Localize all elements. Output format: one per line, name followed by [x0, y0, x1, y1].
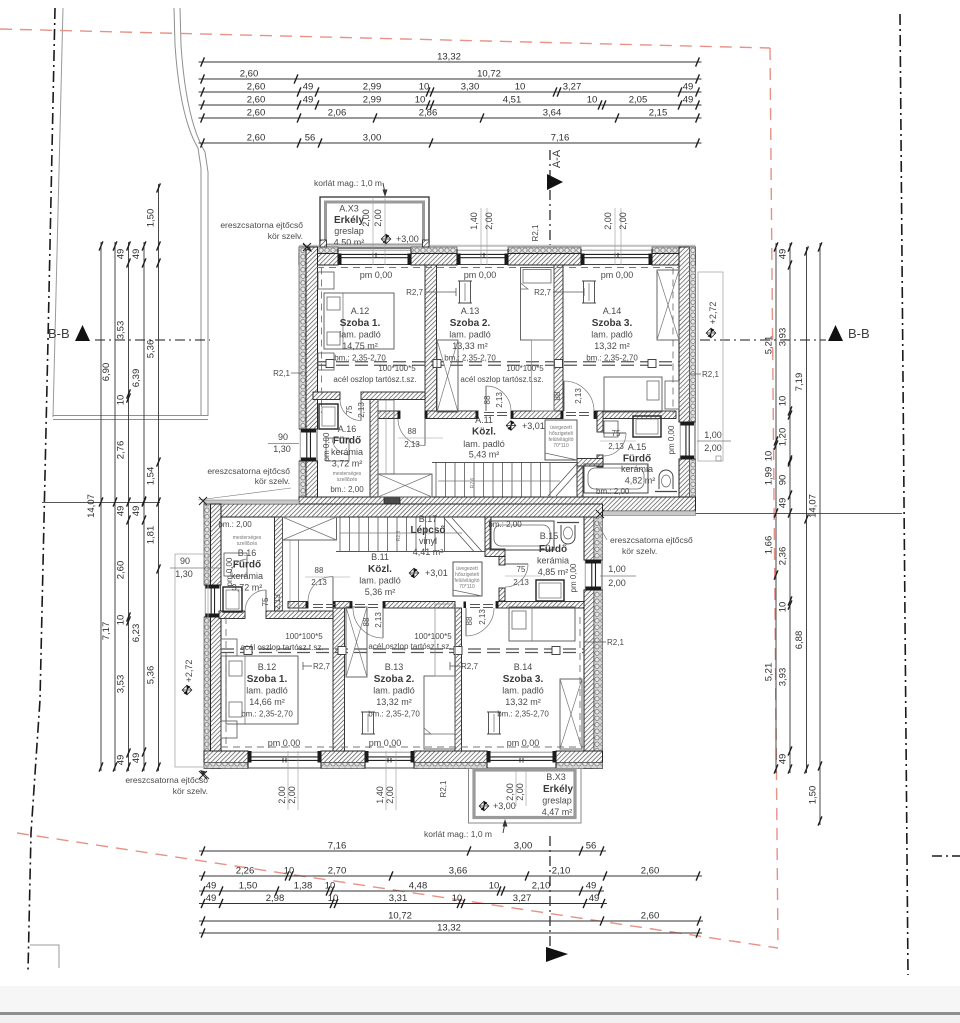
svg-text:2,00: 2,00 — [704, 443, 722, 453]
svg-text:2,00: 2,00 — [361, 209, 371, 227]
svg-text:13,33 m²: 13,33 m² — [452, 341, 488, 351]
svg-text:3,72 m²: 3,72 m² — [332, 459, 363, 469]
svg-text:A.16: A.16 — [338, 424, 357, 434]
svg-text:2,60: 2,60 — [247, 133, 266, 144]
svg-text:2,98: 2,98 — [266, 893, 285, 904]
svg-text:3,53: 3,53 — [116, 321, 127, 340]
svg-text:A.15: A.15 — [628, 442, 647, 452]
svg-text:49: 49 — [303, 95, 314, 106]
svg-text:R2,6: R2,6 — [396, 531, 402, 542]
svg-text:1,66: 1,66 — [764, 536, 775, 555]
svg-text:2,13: 2,13 — [404, 440, 420, 449]
svg-text:88: 88 — [408, 427, 417, 436]
svg-text:5,36: 5,36 — [146, 340, 157, 359]
svg-text:2,00: 2,00 — [603, 212, 613, 230]
svg-text:3,64: 3,64 — [543, 108, 562, 119]
svg-text:4,51: 4,51 — [503, 95, 522, 106]
svg-text:greslap: greslap — [542, 796, 572, 806]
svg-text:kerámia: kerámia — [621, 464, 653, 474]
svg-text:lam. padló: lam. padló — [449, 330, 491, 340]
svg-text:Erkély: Erkély — [334, 215, 364, 226]
svg-text:10: 10 — [778, 396, 789, 407]
svg-text:vinyl: vinyl — [419, 536, 437, 546]
svg-text:1,30: 1,30 — [273, 444, 291, 454]
svg-text:10: 10 — [587, 95, 598, 106]
svg-text:2,60: 2,60 — [247, 82, 266, 93]
svg-text:2,06: 2,06 — [328, 108, 347, 119]
svg-text:ereszcsatorna ejtőcső: ereszcsatorna ejtőcső — [125, 775, 208, 785]
svg-text:Lépcső: Lépcső — [410, 525, 445, 536]
svg-text:49: 49 — [116, 249, 127, 260]
svg-text:49: 49 — [778, 754, 789, 765]
svg-text:Szoba 3.: Szoba 3. — [592, 318, 633, 329]
svg-text:7,16: 7,16 — [328, 841, 347, 852]
svg-text:49: 49 — [131, 506, 142, 517]
svg-text:10: 10 — [515, 82, 526, 93]
svg-text:acél oszlop tartósz.t.sz.: acél oszlop tartósz.t.sz. — [368, 642, 451, 651]
svg-text:49: 49 — [303, 82, 314, 93]
svg-text:2,05: 2,05 — [629, 95, 648, 106]
svg-text:49: 49 — [206, 881, 217, 892]
svg-text:2,60: 2,60 — [641, 866, 660, 877]
svg-text:5,21: 5,21 — [764, 663, 775, 682]
svg-text:6,88: 6,88 — [794, 631, 805, 650]
svg-text:3,00: 3,00 — [363, 133, 382, 144]
svg-text:2,00: 2,00 — [385, 786, 395, 804]
svg-text:100*100*5: 100*100*5 — [285, 632, 323, 641]
svg-text:kerámia: kerámia — [231, 571, 263, 581]
svg-text:4,48: 4,48 — [409, 881, 428, 892]
svg-text:Fürdő: Fürdő — [333, 436, 361, 447]
svg-text:10,72: 10,72 — [388, 911, 412, 922]
svg-text:49: 49 — [586, 881, 597, 892]
svg-text:13,32: 13,32 — [437, 52, 461, 63]
svg-text:bm.: 2,00: bm.: 2,00 — [218, 520, 252, 529]
svg-text:90: 90 — [180, 556, 190, 566]
svg-text:kerámia: kerámia — [537, 556, 569, 566]
svg-text:B.17: B.17 — [419, 514, 438, 524]
svg-text:56: 56 — [305, 133, 316, 144]
svg-text:2,00: 2,00 — [373, 209, 383, 227]
svg-text:90: 90 — [278, 432, 288, 442]
svg-text:3,66: 3,66 — [449, 866, 468, 877]
svg-text:10: 10 — [284, 866, 295, 877]
svg-text:lam. padló: lam. padló — [359, 576, 401, 586]
svg-text:Szoba 1.: Szoba 1. — [340, 318, 381, 329]
svg-text:ereszcsatorna ejtőcső: ereszcsatorna ejtőcső — [220, 220, 303, 230]
svg-text:2,60: 2,60 — [247, 95, 266, 106]
svg-text:pm 0,00: pm 0,00 — [507, 738, 540, 748]
svg-text:B-B: B-B — [848, 326, 870, 341]
svg-text:10: 10 — [764, 451, 775, 462]
svg-text:R2,1: R2,1 — [273, 369, 290, 378]
svg-text:pm 0,00: pm 0,00 — [667, 425, 676, 454]
svg-text:pm 0,00: pm 0,00 — [369, 738, 402, 748]
svg-text:49: 49 — [206, 893, 217, 904]
svg-text:acél oszlop tartósz.t.sz.: acél oszlop tartósz.t.sz. — [333, 375, 416, 384]
svg-text:5,36: 5,36 — [146, 666, 157, 685]
svg-text:14,75 m²: 14,75 m² — [342, 341, 378, 351]
svg-text:+2,72: +2,72 — [708, 302, 718, 325]
svg-text:2,36: 2,36 — [778, 547, 789, 566]
svg-text:R2,6: R2,6 — [470, 478, 476, 489]
svg-text:10: 10 — [452, 893, 463, 904]
svg-text:pm 0,00: pm 0,00 — [569, 563, 578, 592]
svg-text:2,13: 2,13 — [495, 392, 504, 408]
svg-text:2,99: 2,99 — [363, 95, 382, 106]
svg-text:2,13: 2,13 — [608, 442, 624, 451]
svg-text:2,60: 2,60 — [641, 911, 660, 922]
svg-text:szellőzés: szellőzés — [337, 477, 358, 483]
svg-text:7,19: 7,19 — [794, 373, 805, 392]
svg-text:2,60: 2,60 — [240, 69, 259, 80]
svg-text:R2,7: R2,7 — [406, 288, 423, 297]
svg-text:B.14: B.14 — [514, 662, 533, 672]
svg-text:2,13: 2,13 — [311, 578, 327, 587]
svg-text:2,00: 2,00 — [505, 783, 515, 801]
svg-text:49: 49 — [116, 755, 127, 766]
svg-text:4,41 m²: 4,41 m² — [413, 547, 444, 557]
svg-text:49: 49 — [131, 753, 142, 764]
svg-text:1,40: 1,40 — [375, 786, 385, 804]
svg-text:R2,1: R2,1 — [702, 370, 719, 379]
svg-text:A.X3: A.X3 — [339, 204, 359, 214]
svg-text:3,27: 3,27 — [513, 893, 532, 904]
svg-text:1,99: 1,99 — [764, 467, 775, 486]
svg-text:2,26: 2,26 — [236, 866, 255, 877]
svg-text:75: 75 — [517, 565, 526, 574]
svg-text:6,23: 6,23 — [131, 624, 142, 643]
svg-text:B.12: B.12 — [258, 662, 277, 672]
svg-text:bm.: 2,00: bm.: 2,00 — [596, 487, 630, 496]
svg-text:13,32 m²: 13,32 m² — [376, 697, 412, 707]
svg-text:1,00: 1,00 — [704, 430, 722, 440]
svg-text:5,36 m²: 5,36 m² — [365, 587, 396, 597]
svg-text:+2,72: +2,72 — [184, 660, 194, 683]
svg-text:2,10: 2,10 — [552, 866, 571, 877]
svg-text:2,60: 2,60 — [247, 108, 266, 119]
svg-text:1,50: 1,50 — [239, 881, 258, 892]
svg-text:lam. padló: lam. padló — [463, 439, 505, 449]
svg-text:bm.: 2,35-2,70: bm.: 2,35-2,70 — [241, 710, 293, 719]
svg-text:88: 88 — [553, 391, 562, 400]
svg-text:2,15: 2,15 — [649, 108, 668, 119]
svg-text:70*110: 70*110 — [553, 443, 569, 449]
svg-text:B.11: B.11 — [371, 552, 389, 562]
svg-text:2,70: 2,70 — [328, 866, 347, 877]
svg-text:49: 49 — [778, 249, 789, 260]
svg-text:49: 49 — [589, 893, 600, 904]
svg-text:10: 10 — [116, 395, 127, 406]
svg-text:10: 10 — [419, 82, 430, 93]
svg-text:korlát mag.: 1,0 m: korlát mag.: 1,0 m — [314, 178, 382, 188]
svg-text:Erkély: Erkély — [543, 784, 573, 795]
svg-text:B.13: B.13 — [385, 662, 404, 672]
svg-text:3,31: 3,31 — [389, 893, 408, 904]
svg-text:70*110: 70*110 — [459, 584, 475, 590]
svg-text:acél oszlop tartósz.t.sz.: acél oszlop tartósz.t.sz. — [460, 375, 543, 384]
svg-text:acél oszlop tartósz.t.sz.: acél oszlop tartósz.t.sz. — [240, 643, 323, 652]
svg-text:Fürdő: Fürdő — [233, 560, 261, 571]
svg-text:bm.: 2,35-2,70: bm.: 2,35-2,70 — [586, 354, 638, 363]
svg-text:A.13: A.13 — [461, 306, 480, 316]
svg-text:88: 88 — [465, 616, 474, 625]
svg-text:88: 88 — [483, 395, 492, 404]
svg-text:Fürdő: Fürdő — [623, 454, 651, 465]
svg-text:lam. padló: lam. padló — [591, 330, 633, 340]
svg-text:13,32 m²: 13,32 m² — [505, 697, 541, 707]
svg-text:kerámia: kerámia — [331, 447, 363, 457]
svg-text:5,43 m²: 5,43 m² — [469, 450, 500, 460]
svg-text:Szoba 2.: Szoba 2. — [374, 674, 415, 685]
svg-text:Közl.: Közl. — [472, 427, 496, 438]
svg-text:6,39: 6,39 — [131, 369, 142, 388]
svg-text:B-B: B-B — [48, 326, 70, 341]
svg-text:4,85 m²: 4,85 m² — [538, 567, 569, 577]
svg-text:1,81: 1,81 — [146, 526, 157, 545]
svg-text:100*100*5: 100*100*5 — [506, 364, 544, 373]
svg-text:100*100*5: 100*100*5 — [414, 632, 452, 641]
svg-text:Szoba 1.: Szoba 1. — [247, 674, 288, 685]
svg-text:A.14: A.14 — [603, 306, 622, 316]
svg-text:2,13: 2,13 — [357, 402, 366, 418]
svg-text:R2,1: R2,1 — [607, 638, 624, 647]
svg-text:korlát mag.: 1,0 m: korlát mag.: 1,0 m — [424, 829, 492, 839]
svg-text:pm 0,00: pm 0,00 — [464, 270, 497, 280]
svg-text:10: 10 — [325, 881, 336, 892]
svg-text:B.X3: B.X3 — [546, 772, 566, 782]
svg-text:3,93: 3,93 — [778, 328, 789, 347]
svg-text:3,27: 3,27 — [563, 82, 582, 93]
svg-text:1,00: 1,00 — [608, 564, 626, 574]
svg-text:bm.: 2,35-2,70: bm.: 2,35-2,70 — [497, 710, 549, 719]
svg-text:+3,00: +3,00 — [396, 234, 419, 244]
svg-text:szellőzés: szellőzés — [237, 541, 258, 547]
svg-text:2,00: 2,00 — [608, 578, 626, 588]
svg-text:14,07: 14,07 — [808, 494, 819, 518]
svg-text:pm 0,00: pm 0,00 — [601, 270, 634, 280]
svg-text:Közl.: Közl. — [368, 564, 392, 575]
svg-text:75: 75 — [261, 597, 270, 606]
svg-text:R2,1: R2,1 — [439, 780, 448, 797]
svg-text:2,00: 2,00 — [287, 786, 297, 804]
svg-text:R2,7: R2,7 — [313, 662, 330, 671]
svg-text:bm.: 2,35-2,70: bm.: 2,35-2,70 — [368, 710, 420, 719]
svg-text:2,00: 2,00 — [515, 783, 525, 801]
svg-text:pm 0,00: pm 0,00 — [268, 738, 301, 748]
svg-text:kör szelv.: kör szelv. — [255, 476, 290, 486]
svg-text:Szoba 3.: Szoba 3. — [503, 674, 544, 685]
svg-text:bm.: 2,35-2,70: bm.: 2,35-2,70 — [334, 354, 386, 363]
svg-text:Fürdő: Fürdő — [539, 544, 567, 555]
svg-text:2,60: 2,60 — [116, 561, 127, 580]
svg-text:pm 0,00: pm 0,00 — [225, 557, 234, 586]
svg-text:14,07: 14,07 — [86, 494, 97, 518]
svg-text:R2,7: R2,7 — [461, 662, 478, 671]
svg-text:49: 49 — [116, 506, 127, 517]
svg-text:2,76: 2,76 — [116, 441, 127, 460]
svg-text:kör szelv.: kör szelv. — [173, 786, 208, 796]
svg-text:kör szelv.: kör szelv. — [268, 231, 303, 241]
svg-text:+3,01: +3,01 — [522, 421, 545, 431]
svg-text:3,72 m²: 3,72 m² — [232, 583, 263, 593]
svg-text:pm 0,00: pm 0,00 — [322, 432, 331, 461]
svg-text:1,54: 1,54 — [146, 467, 157, 486]
svg-text:2,13: 2,13 — [374, 612, 383, 628]
svg-text:7,16: 7,16 — [551, 133, 570, 144]
svg-text:lam. padló: lam. padló — [246, 686, 288, 696]
svg-text:3,30: 3,30 — [461, 82, 480, 93]
svg-text:1,20: 1,20 — [778, 428, 789, 447]
svg-text:R2,7: R2,7 — [534, 288, 551, 297]
svg-text:5,21: 5,21 — [764, 336, 775, 355]
svg-text:2,00: 2,00 — [618, 212, 628, 230]
svg-text:10: 10 — [328, 893, 339, 904]
svg-text:B.16: B.16 — [238, 548, 257, 558]
svg-text:10: 10 — [489, 881, 500, 892]
svg-text:88: 88 — [315, 566, 324, 575]
svg-text:49: 49 — [778, 498, 789, 509]
svg-text:3,93: 3,93 — [778, 668, 789, 687]
svg-text:2,00: 2,00 — [277, 786, 287, 804]
svg-text:kör szelv.: kör szelv. — [622, 546, 657, 556]
svg-text:1,40: 1,40 — [469, 212, 479, 230]
svg-text:A.12: A.12 — [351, 306, 370, 316]
svg-text:3,00: 3,00 — [514, 841, 533, 852]
svg-text:49: 49 — [131, 249, 142, 260]
svg-text:56: 56 — [586, 841, 597, 852]
svg-text:7,17: 7,17 — [101, 622, 112, 641]
svg-text:1,38: 1,38 — [294, 881, 313, 892]
svg-text:2,13: 2,13 — [478, 609, 487, 625]
svg-text:R2,1: R2,1 — [531, 224, 540, 241]
svg-text:2,99: 2,99 — [363, 82, 382, 93]
svg-text:bm.: 2,35-2,70: bm.: 2,35-2,70 — [444, 354, 496, 363]
svg-text:100*100*5: 100*100*5 — [378, 364, 416, 373]
svg-text:10: 10 — [116, 615, 127, 626]
svg-text:ereszcsatorna ejtőcső: ereszcsatorna ejtőcső — [207, 466, 290, 476]
svg-text:10: 10 — [415, 95, 426, 106]
svg-text:bm.: 2,00: bm.: 2,00 — [330, 485, 364, 494]
svg-text:lam. padló: lam. padló — [339, 330, 381, 340]
svg-text:88: 88 — [362, 617, 371, 626]
svg-text:10: 10 — [778, 602, 789, 613]
svg-text:lam. padló: lam. padló — [373, 686, 415, 696]
svg-text:75: 75 — [612, 429, 621, 438]
svg-text:2,13: 2,13 — [574, 388, 583, 404]
svg-text:ereszcsatorna ejtőcső: ereszcsatorna ejtőcső — [610, 535, 693, 545]
svg-text:Szoba 2.: Szoba 2. — [450, 318, 491, 329]
svg-text:2,00: 2,00 — [484, 212, 494, 230]
svg-text:bm.: 2,00: bm.: 2,00 — [488, 520, 522, 529]
svg-text:4,47 m²: 4,47 m² — [542, 807, 573, 817]
svg-text:A-A: A-A — [551, 149, 563, 168]
svg-text:+3,00: +3,00 — [493, 801, 516, 811]
svg-text:49: 49 — [683, 82, 694, 93]
svg-text:2,13: 2,13 — [273, 594, 282, 610]
svg-text:2,86: 2,86 — [419, 108, 438, 119]
svg-text:+3,01: +3,01 — [425, 568, 448, 578]
svg-text:B.15: B.15 — [540, 531, 559, 541]
svg-text:13,32 m²: 13,32 m² — [594, 341, 630, 351]
svg-text:lam. padló: lam. padló — [502, 686, 544, 696]
svg-text:4,82 m²: 4,82 m² — [625, 476, 656, 486]
svg-text:pm 0,00: pm 0,00 — [360, 270, 393, 280]
svg-text:1,30: 1,30 — [175, 569, 193, 579]
svg-text:10,72: 10,72 — [477, 69, 501, 80]
svg-text:1,50: 1,50 — [808, 786, 819, 805]
svg-text:2,13: 2,13 — [513, 578, 529, 587]
svg-text:greslap: greslap — [334, 226, 364, 236]
svg-text:13,32: 13,32 — [437, 923, 461, 934]
svg-text:3,53: 3,53 — [116, 675, 127, 694]
svg-text:49: 49 — [683, 95, 694, 106]
svg-text:6,90: 6,90 — [101, 363, 112, 382]
svg-text:90: 90 — [778, 475, 789, 486]
svg-text:14,66 m²: 14,66 m² — [249, 697, 285, 707]
svg-text:2,10: 2,10 — [532, 881, 551, 892]
svg-text:75: 75 — [345, 405, 354, 414]
svg-text:1,50: 1,50 — [146, 209, 157, 228]
